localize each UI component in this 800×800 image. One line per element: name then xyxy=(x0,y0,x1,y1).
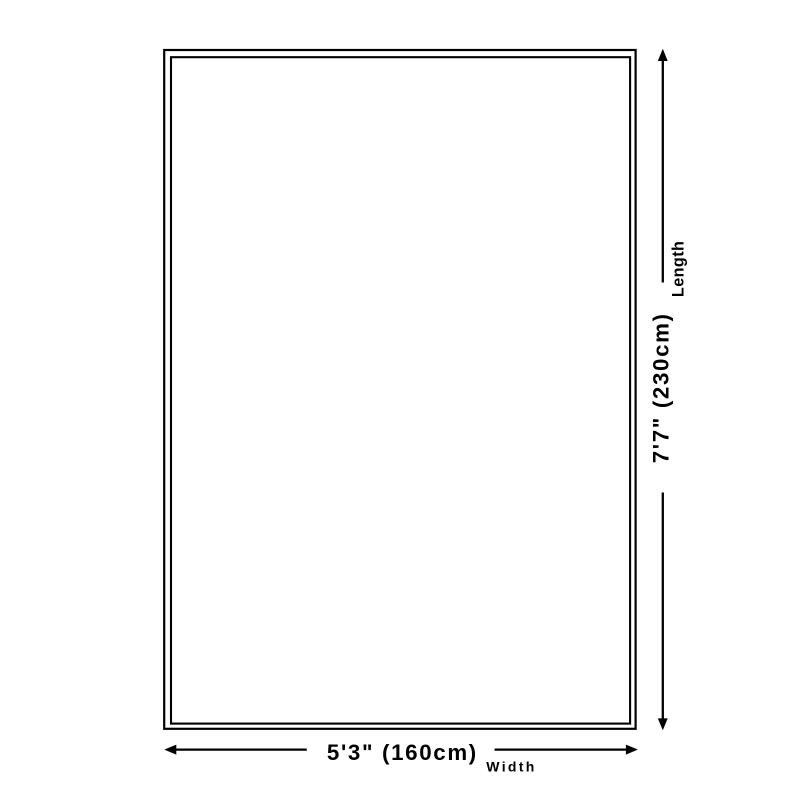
svg-text:5'3" (160cm): 5'3" (160cm) xyxy=(327,740,478,765)
svg-text:Width: Width xyxy=(486,759,536,775)
svg-text:Length: Length xyxy=(669,241,687,297)
svg-text:7'7" (230cm): 7'7" (230cm) xyxy=(649,312,674,463)
